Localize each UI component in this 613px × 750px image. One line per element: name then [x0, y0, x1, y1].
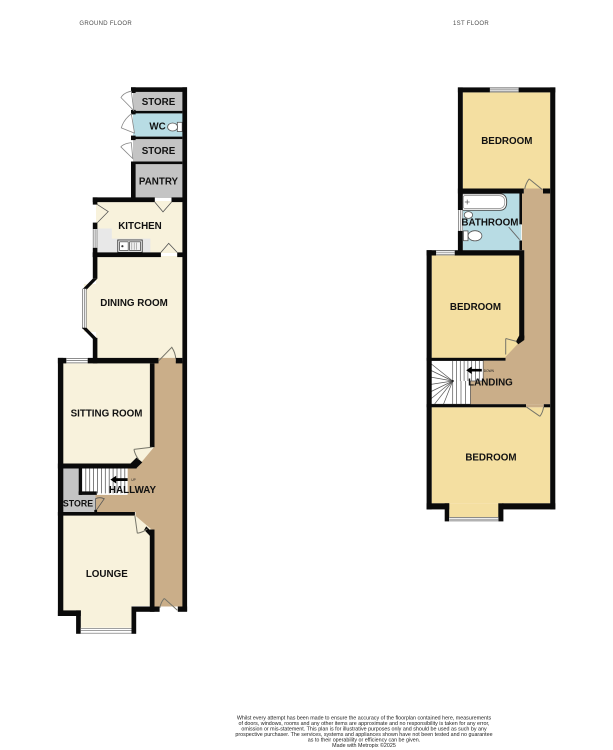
svg-text:BEDROOM: BEDROOM [481, 136, 532, 147]
svg-text:STORE: STORE [63, 498, 93, 508]
svg-text:SITTING ROOM: SITTING ROOM [71, 408, 143, 419]
svg-text:1ST FLOOR: 1ST FLOOR [453, 21, 489, 27]
svg-text:UP: UP [131, 478, 135, 482]
svg-text:DINING ROOM: DINING ROOM [100, 298, 168, 309]
svg-text:HALLWAY: HALLWAY [109, 485, 156, 496]
svg-text:WC: WC [149, 122, 165, 133]
svg-text:KITCHEN: KITCHEN [118, 221, 162, 232]
svg-text:Made with Metropix ©2025: Made with Metropix ©2025 [332, 742, 396, 749]
svg-text:LOUNGE: LOUNGE [86, 569, 128, 580]
svg-text:LANDING: LANDING [468, 378, 513, 389]
svg-text:BEDROOM: BEDROOM [450, 302, 501, 313]
svg-text:GROUND FLOOR: GROUND FLOOR [79, 21, 132, 27]
svg-text:STORE: STORE [142, 146, 176, 157]
svg-text:BATHROOM: BATHROOM [461, 218, 518, 229]
svg-text:STORE: STORE [142, 97, 176, 108]
svg-text:DOWN: DOWN [484, 369, 495, 373]
svg-text:BEDROOM: BEDROOM [465, 452, 516, 463]
svg-text:PANTRY: PANTRY [139, 176, 179, 187]
